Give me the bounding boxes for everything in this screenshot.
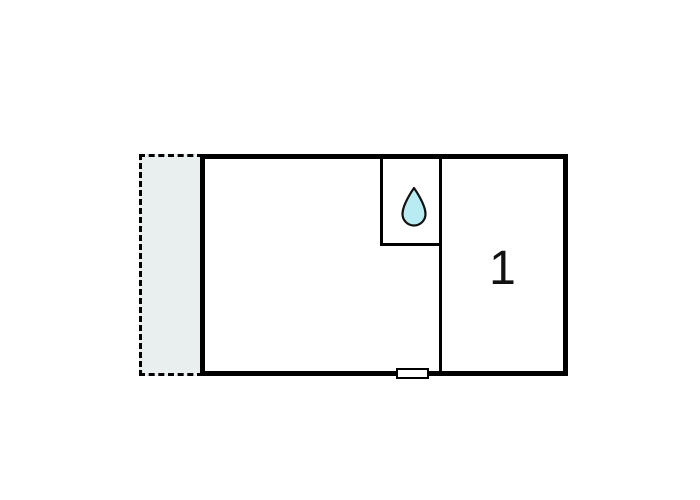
water-drop-icon	[399, 186, 429, 228]
terrace-area	[139, 154, 203, 376]
water-drop-shape	[403, 188, 426, 225]
bathroom-wall-left	[380, 159, 383, 246]
bathroom-wall-bottom	[380, 243, 442, 246]
room-1-label: 1	[442, 238, 563, 298]
floorplan-canvas: 1	[0, 0, 700, 500]
window-marker	[396, 368, 429, 379]
